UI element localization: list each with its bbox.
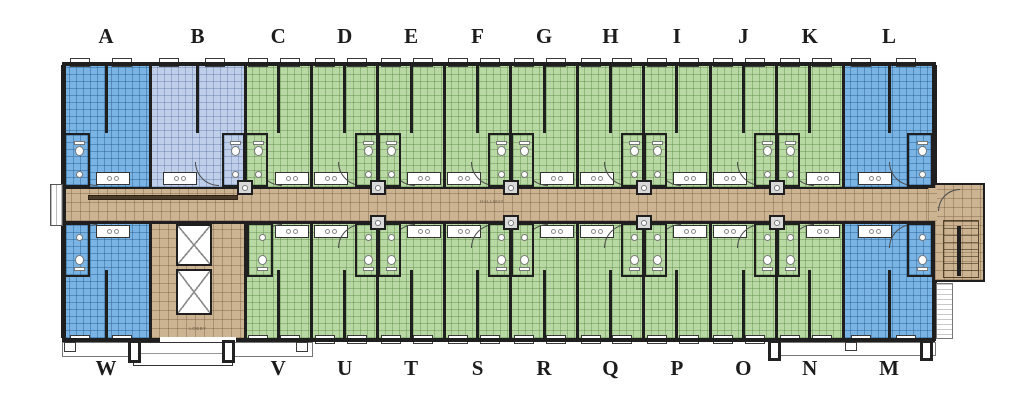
- sink-icon: [520, 146, 529, 156]
- burner-icon: [551, 176, 556, 181]
- exterior-wall-top: [62, 62, 935, 66]
- burner-icon: [325, 229, 330, 234]
- partition-wall: [543, 270, 546, 338]
- burner-icon: [107, 229, 112, 234]
- bathroom: [355, 223, 378, 277]
- burner-icon: [731, 229, 736, 234]
- sink-icon: [232, 171, 239, 178]
- sink-icon: [787, 234, 794, 241]
- bathroom: [355, 133, 378, 187]
- burner-icon: [869, 176, 874, 181]
- unit-label-W: W: [96, 356, 117, 381]
- toilet-icon: [230, 141, 241, 145]
- plumbing-chase: [503, 215, 519, 230]
- partition-wall: [609, 65, 612, 133]
- burner-icon: [724, 176, 729, 181]
- burner-icon: [293, 229, 298, 234]
- bathroom: [488, 133, 511, 187]
- sink-icon: [631, 171, 638, 178]
- partition-wall: [888, 270, 891, 338]
- vent-icon: [641, 220, 647, 226]
- toilet-icon: [496, 267, 507, 271]
- burner-icon: [114, 176, 119, 181]
- burner-icon: [731, 176, 736, 181]
- sink-icon: [787, 171, 794, 178]
- sink-icon: [258, 255, 267, 265]
- unit-label-O: O: [735, 356, 751, 381]
- toilet-icon: [257, 267, 268, 271]
- partition-wall: [675, 65, 678, 133]
- sink-icon: [918, 255, 927, 265]
- porch-corner: [845, 342, 857, 351]
- bathroom: [621, 133, 644, 187]
- burner-icon: [286, 176, 291, 181]
- burner-icon: [591, 229, 596, 234]
- bathroom: [907, 133, 933, 187]
- burner-icon: [465, 229, 470, 234]
- partition-wall: [410, 270, 413, 338]
- partition-wall: [742, 65, 745, 133]
- sink-icon: [630, 146, 639, 156]
- unit-divider-wall: [642, 223, 645, 338]
- vent-icon: [774, 220, 780, 226]
- sink-icon: [75, 255, 84, 265]
- partition-wall: [343, 270, 346, 338]
- balcony-right: [936, 283, 953, 339]
- vent-icon: [508, 185, 514, 191]
- elevator-shaft-1: [176, 224, 212, 266]
- hallway: [62, 188, 935, 221]
- hallway-stair-connector: [928, 188, 937, 221]
- unit-divider-wall: [509, 223, 512, 338]
- sink-icon: [254, 146, 263, 156]
- sink-icon: [786, 255, 795, 265]
- burner-icon: [824, 176, 829, 181]
- toilet-icon: [519, 267, 530, 271]
- stair-handrail: [957, 226, 961, 276]
- burner-icon: [332, 176, 337, 181]
- sink-icon: [364, 255, 373, 265]
- sink-icon: [497, 255, 506, 265]
- partition-wall: [277, 65, 280, 133]
- toilet-icon: [386, 267, 397, 271]
- unit-label-R: R: [536, 356, 551, 381]
- kitchen-counter: [96, 172, 130, 185]
- partition-wall: [343, 65, 346, 133]
- partition-wall: [105, 270, 108, 338]
- stair-treads-icon: [943, 220, 979, 278]
- lobby-label: LOBBY: [189, 326, 206, 331]
- unit-label-Q: Q: [602, 356, 618, 381]
- bathroom: [754, 223, 777, 277]
- sink-icon: [388, 234, 395, 241]
- sink-icon: [521, 171, 528, 178]
- unit-divider-wall: [149, 223, 152, 338]
- bathroom: [222, 133, 245, 187]
- bathroom: [621, 223, 644, 277]
- vent-icon: [641, 185, 647, 191]
- sink-icon: [259, 234, 266, 241]
- vent-icon: [242, 185, 248, 191]
- unit-divider-wall: [709, 65, 712, 187]
- sink-icon: [520, 255, 529, 265]
- plumbing-chase: [769, 180, 785, 195]
- burner-icon: [817, 176, 822, 181]
- bathroom: [777, 133, 800, 187]
- sink-icon: [654, 234, 661, 241]
- burner-icon: [869, 229, 874, 234]
- partition-wall: [888, 65, 891, 133]
- toilet-icon: [917, 141, 928, 145]
- unit-divider-wall: [443, 65, 446, 187]
- unit-divider-wall: [509, 65, 512, 187]
- burner-icon: [458, 229, 463, 234]
- toilet-icon: [785, 267, 796, 271]
- elevator-shaft-2: [176, 269, 212, 315]
- stairwell: [933, 183, 985, 282]
- kitchen-counter: [96, 225, 130, 238]
- kitchen-counter: [858, 225, 892, 238]
- bathroom: [511, 133, 534, 187]
- burner-icon: [458, 176, 463, 181]
- entrance-step: [140, 353, 226, 354]
- sink-icon: [364, 146, 373, 156]
- sink-icon: [365, 171, 372, 178]
- partition-wall: [808, 270, 811, 338]
- toilet-icon: [253, 141, 264, 145]
- sink-icon: [76, 171, 83, 178]
- burner-icon: [181, 176, 186, 181]
- door-arc-icon: [938, 189, 960, 211]
- unit-divider-wall: [842, 65, 845, 187]
- burner-icon: [876, 229, 881, 234]
- plumbing-chase: [503, 180, 519, 195]
- burner-icon: [551, 229, 556, 234]
- burner-icon: [817, 229, 822, 234]
- burner-icon: [286, 229, 291, 234]
- unit-divider-wall: [244, 65, 247, 187]
- burner-icon: [724, 229, 729, 234]
- hallway-label: HALLWAY: [480, 199, 504, 204]
- hall-wall-top: [62, 187, 935, 190]
- bathroom: [64, 133, 90, 187]
- vent-icon: [375, 220, 381, 226]
- partition-wall: [196, 65, 199, 133]
- unit-divider-wall: [576, 65, 579, 187]
- bathroom: [777, 223, 800, 277]
- toilet-icon: [917, 267, 928, 271]
- sink-icon: [918, 146, 927, 156]
- sink-icon: [763, 146, 772, 156]
- unit-divider-wall: [149, 65, 152, 187]
- partition-wall: [675, 270, 678, 338]
- burner-icon: [558, 176, 563, 181]
- sink-icon: [764, 171, 771, 178]
- sink-icon: [631, 234, 638, 241]
- toilet-icon: [386, 141, 397, 145]
- plumbing-chase: [370, 215, 386, 230]
- toilet-icon: [652, 141, 663, 145]
- toilet-icon: [363, 141, 374, 145]
- sink-icon: [654, 171, 661, 178]
- bathroom: [644, 223, 667, 277]
- burner-icon: [598, 229, 603, 234]
- partition-wall: [476, 270, 479, 338]
- unit-divider-wall: [775, 65, 778, 187]
- sink-icon: [653, 255, 662, 265]
- burner-icon: [691, 176, 696, 181]
- partition-wall: [609, 270, 612, 338]
- vent-icon: [774, 185, 780, 191]
- sink-icon: [763, 255, 772, 265]
- sink-icon: [498, 234, 505, 241]
- toilet-icon: [363, 267, 374, 271]
- unit-divider-wall: [576, 223, 579, 338]
- unit-divider-wall: [376, 65, 379, 187]
- plumbing-chase: [237, 180, 253, 195]
- burner-icon: [174, 176, 179, 181]
- sink-icon: [521, 234, 528, 241]
- unit-label-S: S: [472, 356, 484, 381]
- burner-icon: [691, 229, 696, 234]
- kitchen-counter: [163, 172, 197, 185]
- floor-plan-canvas: ABCDEFGHIJKL HALLWAY LOBBY WVUTSRQPONM: [0, 0, 1028, 414]
- sink-icon: [630, 255, 639, 265]
- kitchen-counter: [858, 172, 892, 185]
- vent-icon: [508, 220, 514, 226]
- burner-icon: [824, 229, 829, 234]
- toilet-icon: [785, 141, 796, 145]
- sink-icon: [387, 255, 396, 265]
- toilet-icon: [629, 141, 640, 145]
- burner-icon: [558, 229, 563, 234]
- partition-wall: [543, 65, 546, 133]
- toilet-icon: [74, 267, 85, 271]
- porch-corner: [296, 342, 308, 352]
- bathroom: [245, 133, 268, 187]
- burner-icon: [598, 176, 603, 181]
- unit-divider-wall: [709, 223, 712, 338]
- bathroom: [511, 223, 534, 277]
- unit-divider-wall: [244, 223, 247, 338]
- toilet-icon: [519, 141, 530, 145]
- sink-icon: [231, 146, 240, 156]
- burner-icon: [107, 176, 112, 181]
- partition-wall: [742, 270, 745, 338]
- unit-divider-wall: [842, 223, 845, 338]
- sink-icon: [653, 146, 662, 156]
- hallway-bench: [88, 195, 238, 200]
- plumbing-chase: [370, 180, 386, 195]
- toilet-icon: [496, 141, 507, 145]
- burner-icon: [418, 176, 423, 181]
- burner-icon: [684, 229, 689, 234]
- toilet-icon: [762, 141, 773, 145]
- plumbing-chase: [769, 215, 785, 230]
- burner-icon: [332, 229, 337, 234]
- burner-icon: [591, 176, 596, 181]
- sink-icon: [919, 171, 926, 178]
- sink-icon: [387, 146, 396, 156]
- bathroom: [247, 223, 273, 277]
- bathroom: [754, 133, 777, 187]
- unit-label-U: U: [337, 356, 352, 381]
- unit-label-V: V: [271, 356, 286, 381]
- unit-label-N: N: [802, 356, 817, 381]
- unit-divider-wall: [775, 223, 778, 338]
- unit-label-T: T: [404, 356, 418, 381]
- exit-door-left: [50, 184, 63, 226]
- burner-icon: [876, 176, 881, 181]
- burner-icon: [418, 229, 423, 234]
- burner-icon: [325, 176, 330, 181]
- unit-divider-wall: [642, 65, 645, 187]
- bathroom: [488, 223, 511, 277]
- sink-icon: [919, 234, 926, 241]
- porch-corner: [64, 342, 76, 352]
- partition-wall: [105, 65, 108, 133]
- burner-icon: [114, 229, 119, 234]
- sink-icon: [786, 146, 795, 156]
- sink-icon: [255, 171, 262, 178]
- sink-icon: [497, 146, 506, 156]
- unit-label-P: P: [670, 356, 683, 381]
- unit-divider-wall: [443, 223, 446, 338]
- sink-icon: [388, 171, 395, 178]
- toilet-icon: [652, 267, 663, 271]
- partition-wall: [410, 65, 413, 133]
- bathroom: [644, 133, 667, 187]
- toilet-icon: [74, 141, 85, 145]
- partition-wall: [277, 270, 280, 338]
- floor-plan: HALLWAY LOBBY: [0, 0, 1028, 414]
- sink-icon: [764, 234, 771, 241]
- sink-icon: [75, 146, 84, 156]
- burner-icon: [425, 229, 430, 234]
- unit-labels-bottom: WVUTSRQPONM: [0, 356, 1028, 388]
- bathroom: [907, 223, 933, 277]
- bathroom: [64, 223, 90, 277]
- burner-icon: [425, 176, 430, 181]
- toilet-icon: [629, 267, 640, 271]
- partition-wall: [476, 65, 479, 133]
- sink-icon: [365, 234, 372, 241]
- sink-icon: [498, 171, 505, 178]
- burner-icon: [465, 176, 470, 181]
- plumbing-chase: [636, 180, 652, 195]
- unit-divider-wall: [376, 223, 379, 338]
- vent-icon: [375, 185, 381, 191]
- burner-icon: [293, 176, 298, 181]
- unit-label-M: M: [879, 356, 899, 381]
- bathroom: [378, 133, 401, 187]
- unit-divider-wall: [310, 223, 313, 338]
- burner-icon: [684, 176, 689, 181]
- bathroom: [378, 223, 401, 277]
- sink-icon: [76, 234, 83, 241]
- plumbing-chase: [636, 215, 652, 230]
- unit-divider-wall: [310, 65, 313, 187]
- partition-wall: [808, 65, 811, 133]
- toilet-icon: [762, 267, 773, 271]
